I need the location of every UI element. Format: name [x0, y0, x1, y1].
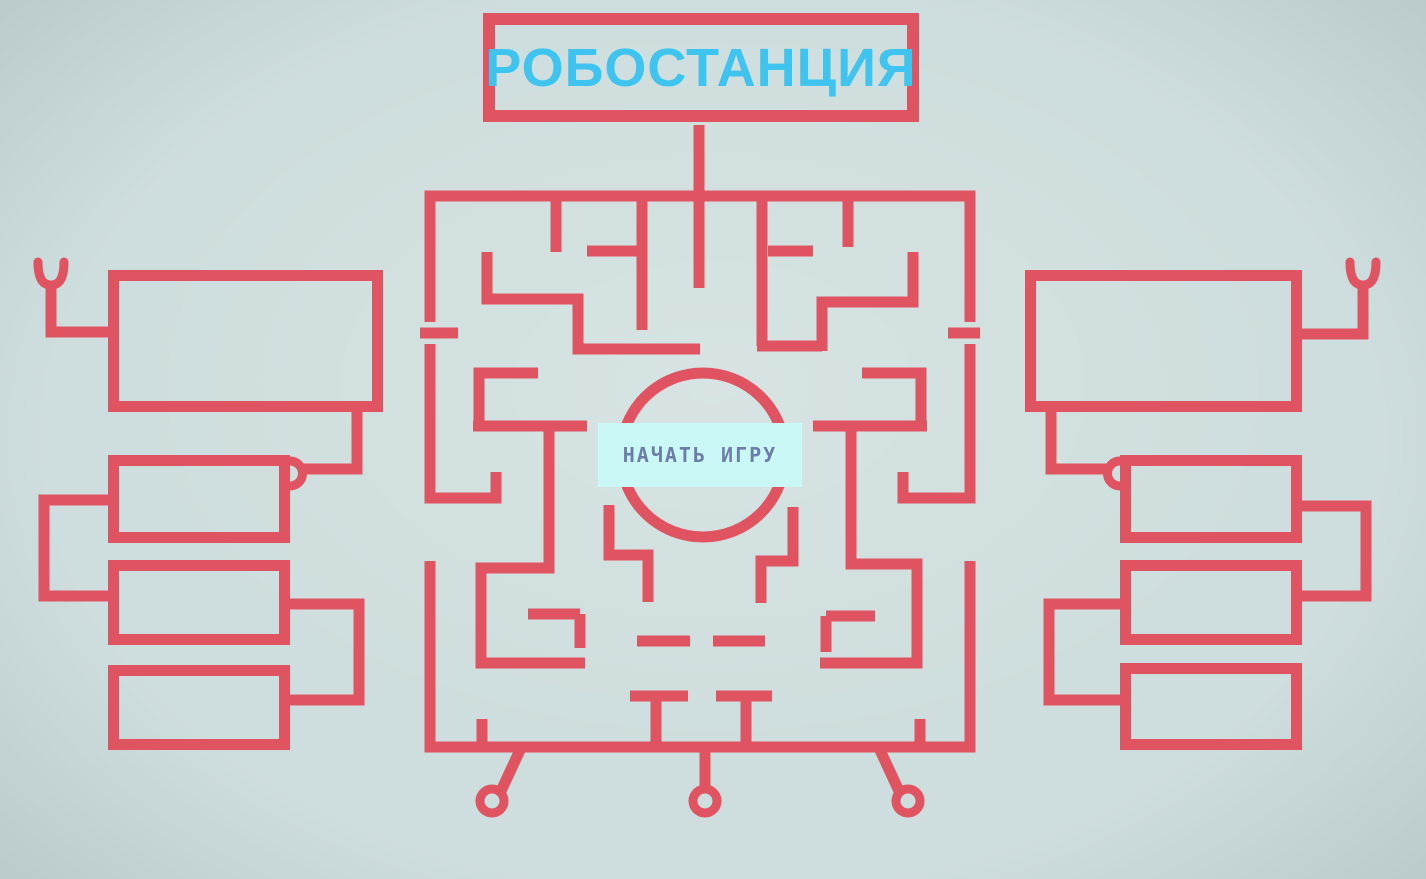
robot-legs [480, 745, 920, 813]
game-start-screen: РОБОСТАНЦИЯ НАЧАТЬ ИГРУ [0, 0, 1426, 879]
left-panel [44, 276, 378, 745]
left-box-3 [114, 671, 285, 745]
right-box-3 [1126, 669, 1297, 745]
right-big-box [1031, 276, 1297, 407]
start-game-button[interactable]: НАЧАТЬ ИГРУ [598, 423, 802, 487]
left-hook [290, 461, 303, 486]
foot-wheel-left [480, 789, 504, 813]
left-box-2 [114, 566, 285, 640]
left-big-box [114, 276, 378, 407]
right-hook [1107, 461, 1120, 486]
foot-wheel-center [693, 789, 717, 813]
page-title: РОБОСТАНЦИЯ [489, 19, 913, 116]
right-box-1 [1126, 461, 1297, 538]
claw-icon-right [1350, 262, 1376, 285]
right-panel [1031, 276, 1367, 745]
left-box-1 [114, 461, 285, 538]
robot-right-arm [1298, 262, 1376, 334]
claw-icon-left [38, 262, 64, 285]
foot-wheel-right [896, 789, 920, 813]
robot-left-arm [38, 262, 110, 332]
right-box-2 [1126, 566, 1297, 640]
